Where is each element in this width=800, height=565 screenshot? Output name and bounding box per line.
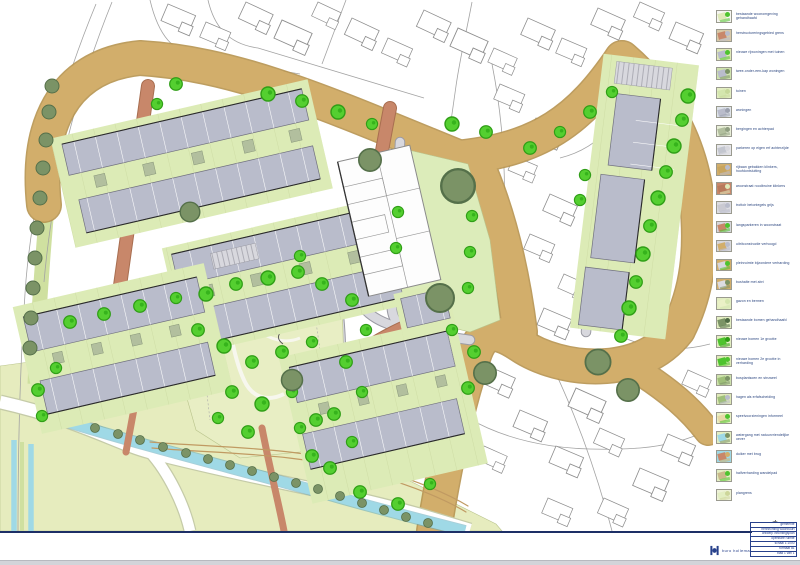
legend-item: woonstraat roodbruine klinkers (716, 181, 798, 200)
legend-swatch (716, 450, 732, 463)
legend-swatch (716, 355, 732, 368)
legend-item: speelvoorzieningen informeel (716, 411, 798, 430)
legend-label: bestaande bomen gehandhaafd (736, 315, 794, 322)
title-block: gemeente herinrichting woonbuurt ontwerp… (750, 522, 797, 557)
legend-swatch (716, 48, 732, 61)
legend-swatch (716, 374, 732, 387)
legend-label: twee-onder-een-kap woningen (736, 66, 794, 73)
legend-swatch (716, 144, 732, 157)
legend-label: woonstraat roodbruine klinkers (736, 181, 794, 188)
site-plan-drawing (0, 0, 800, 565)
legend-item: twee-onder-een-kap woningen (716, 66, 798, 85)
plan-sheet: bestaande woonomgeving gehandhaafd herst… (0, 0, 800, 565)
legend-item: nieuwe rijwoningen met tuinen (716, 47, 798, 66)
legend-swatch (716, 10, 732, 23)
legend-swatch (716, 29, 732, 42)
legend-item: rijbaan gebakken klinkers, hoofdontsluit… (716, 162, 798, 181)
legend-label: nieuwe bomen 1e grootte (736, 334, 794, 341)
legend-item: bestaande bomen gehandhaafd (716, 315, 798, 334)
legend-swatch (716, 335, 732, 348)
sheet-bottom-strip (0, 560, 800, 565)
legend-item: woningen (716, 105, 798, 124)
legend-label: hagen als erfafscheiding (736, 392, 794, 399)
legend-item: nieuwe bomen 1e grootte (716, 334, 798, 353)
legend-item: watergang met natuurvriendelijke oever (716, 430, 798, 449)
sheet-border-line (0, 531, 752, 533)
legend-label: watergang met natuurvriendelijke oever (736, 430, 794, 441)
legend-label: uitritconstructie verhoogd (736, 239, 794, 246)
legend-item: bestaande woonomgeving gehandhaafd (716, 9, 798, 28)
legend-item: herstructureringsgebied grens (716, 28, 798, 47)
legend-label: bushalte met abri (736, 277, 794, 284)
legend-swatch (716, 489, 732, 502)
legend-label: plangrens (736, 488, 794, 495)
legend-swatch (716, 393, 732, 406)
legend-swatch (716, 201, 732, 214)
legend-label: bestaande woonomgeving gehandhaafd (736, 9, 794, 20)
legend-item: gazon en bermen (716, 296, 798, 315)
legend-swatch (716, 221, 732, 234)
legend-swatch (716, 469, 732, 482)
legend-label: speelvoorzieningen informeel (736, 411, 794, 418)
legend-label: tuinen (736, 86, 794, 93)
legend-label: nieuwe bomen 2e grootte in verharding (736, 354, 794, 365)
legend-label: gazon en bermen (736, 296, 794, 303)
firm-logo-text: buro hollema (722, 548, 750, 553)
legend-item: tuinen (716, 86, 798, 105)
legend-item: langsparkeren in woonstraat (716, 220, 798, 239)
legend-swatch (716, 316, 732, 329)
legend-label: pleinruimte bijzondere verharding (736, 258, 794, 265)
legend-label: woningen (736, 105, 794, 112)
legend-item: duiker met brug (716, 449, 798, 468)
legend-item: hagen als erfafscheiding (716, 392, 798, 411)
firm-logo: buro hollema (709, 545, 750, 556)
legend-swatch (716, 67, 732, 80)
legend-item: nieuwe bomen 2e grootte in verharding (716, 354, 798, 373)
legend-label: rijbaan gebakken klinkers, hoofdontsluit… (736, 162, 794, 173)
title-block-row: blad 1 van 1 (751, 552, 796, 556)
legend-swatch (716, 278, 732, 291)
legend: bestaande woonomgeving gehandhaafd herst… (716, 9, 798, 507)
legend-swatch (716, 412, 732, 425)
legend-item: trottoir betontegels grijs (716, 200, 798, 219)
legend-swatch (716, 87, 732, 100)
legend-swatch (716, 431, 732, 444)
legend-label: herstructureringsgebied grens (736, 28, 794, 35)
legend-item: uitritconstructie verhoogd (716, 239, 798, 258)
legend-swatch (716, 240, 732, 253)
legend-item: bosplantsoen en struweel (716, 373, 798, 392)
legend-swatch (716, 297, 732, 310)
legend-label: langsparkeren in woonstraat (736, 220, 794, 227)
legend-label: bosplantsoen en struweel (736, 373, 794, 380)
legend-swatch (716, 259, 732, 272)
legend-item: bergingen en achterpad (716, 124, 798, 143)
legend-swatch (716, 125, 732, 138)
legend-swatch (716, 106, 732, 119)
legend-swatch (716, 182, 732, 195)
legend-item: pleinruimte bijzondere verharding (716, 258, 798, 277)
legend-label: parkeren op eigen erf achterzijde (736, 143, 794, 150)
legend-label: halfverharding wandelpad (736, 468, 794, 475)
legend-label: bergingen en achterpad (736, 124, 794, 131)
legend-swatch (716, 163, 732, 176)
legend-label: duiker met brug (736, 449, 794, 456)
legend-item: parkeren op eigen erf achterzijde (716, 143, 798, 162)
legend-item: bushalte met abri (716, 277, 798, 296)
legend-label: nieuwe rijwoningen met tuinen (736, 47, 794, 54)
legend-item: plangrens (716, 488, 798, 507)
legend-label: trottoir betontegels grijs (736, 200, 794, 207)
legend-item: halfverharding wandelpad (716, 468, 798, 487)
buro-hollema-logo-icon (709, 545, 720, 556)
